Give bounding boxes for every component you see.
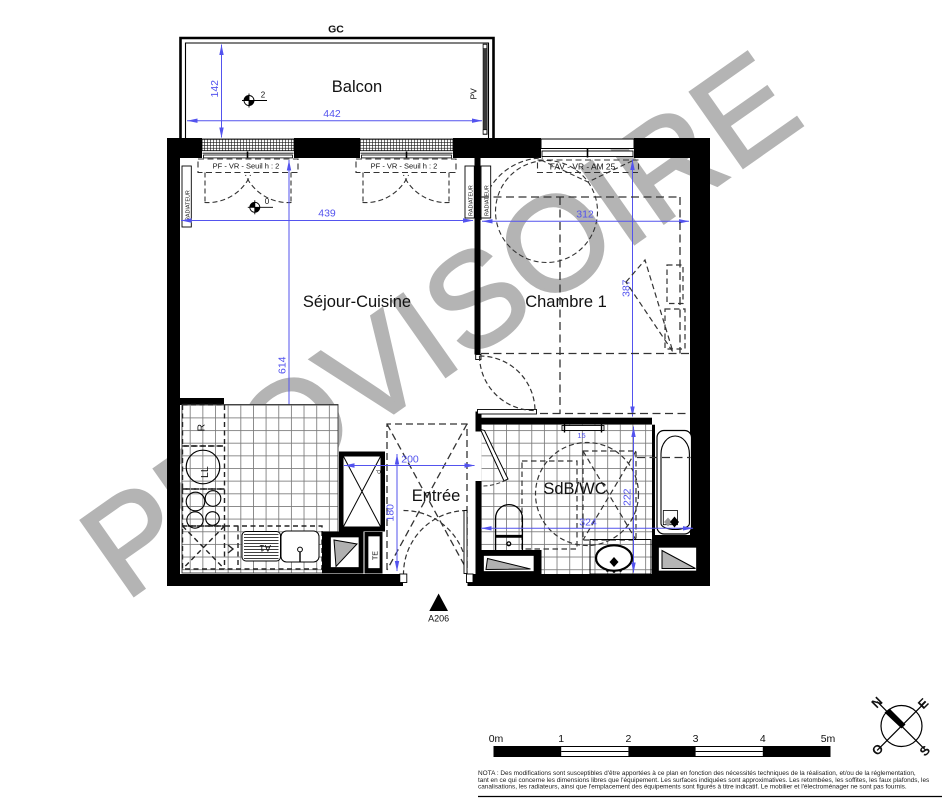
svg-text:1: 1 [558,733,564,745]
svg-text:324: 324 [579,516,597,528]
svg-text:SdB/WC: SdB/WC [543,480,606,498]
svg-text:RADIATEUR: RADIATEUR [186,190,192,221]
svg-text:312: 312 [576,208,594,220]
svg-text:4: 4 [760,733,766,745]
svg-text:LL: LL [199,466,211,478]
svg-text:PV: PV [469,88,479,100]
svg-text:180: 180 [385,504,397,522]
svg-text:A1: A1 [259,542,271,553]
svg-text:FAV - VR - AM 25: FAV - VR - AM 25 [550,162,616,172]
svg-text:Entrée: Entrée [412,487,461,505]
svg-text:5m: 5m [821,733,836,745]
svg-text:PF - VR - Seuil h : 2: PF - VR - Seuil h : 2 [213,162,280,171]
svg-text:P: P [374,470,380,474]
svg-text:222: 222 [622,488,634,506]
svg-text:142: 142 [209,80,221,98]
svg-text:2: 2 [625,733,631,745]
svg-text:TE: TE [373,551,380,560]
svg-text:3: 3 [693,733,699,745]
svg-text:Séjour-Cuisine: Séjour-Cuisine [303,293,411,311]
svg-text:0: 0 [265,197,270,206]
svg-text:canalisations, les radiateurs,: canalisations, les radiateurs, ainsi que… [478,784,907,791]
svg-text:200: 200 [401,454,419,466]
svg-text:RADIATEUR: RADIATEUR [469,185,475,216]
svg-text:439: 439 [318,208,336,220]
svg-text:RADIATEUR: RADIATEUR [485,185,491,216]
svg-text:442: 442 [323,108,341,120]
svg-text:Chambre 1: Chambre 1 [525,293,607,311]
svg-text:A206: A206 [428,614,449,624]
svg-text:614: 614 [277,356,289,374]
svg-text:0m: 0m [489,733,504,745]
svg-text:15: 15 [577,431,585,440]
svg-text:2: 2 [261,91,266,100]
svg-text:GC: GC [328,24,344,36]
svg-text:PF - VR - Seuil h : 2: PF - VR - Seuil h : 2 [371,162,438,171]
svg-text:R: R [196,424,208,432]
svg-text:Balcon: Balcon [332,78,382,96]
